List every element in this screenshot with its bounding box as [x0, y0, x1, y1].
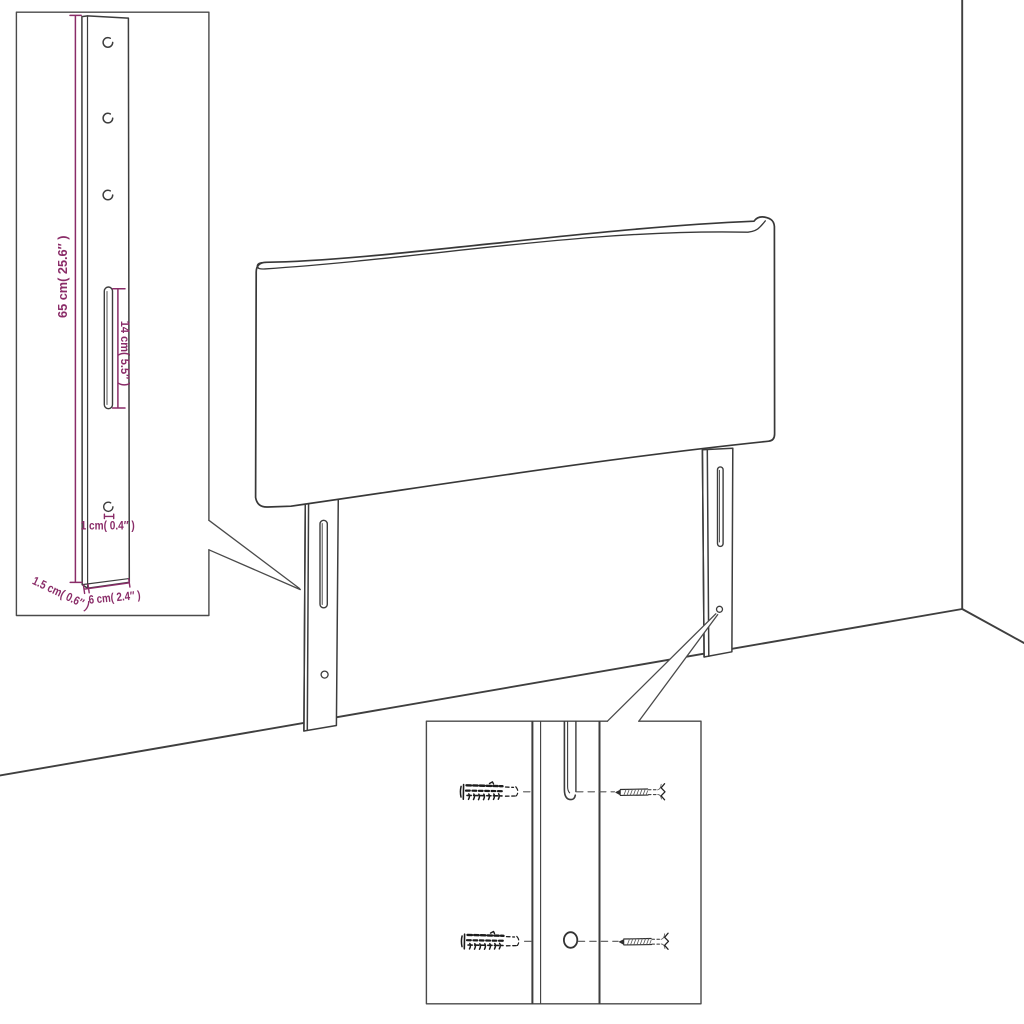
svg-text:1 cm( 0.4″ ): 1 cm( 0.4″ ) [81, 520, 135, 533]
svg-text:65 cm( 25.6″ ): 65 cm( 25.6″ ) [55, 235, 70, 318]
svg-text:6 cm( 2.4″ ): 6 cm( 2.4″ ) [88, 589, 141, 607]
svg-text:14 cm( 5.5″ ): 14 cm( 5.5″ ) [118, 321, 130, 387]
